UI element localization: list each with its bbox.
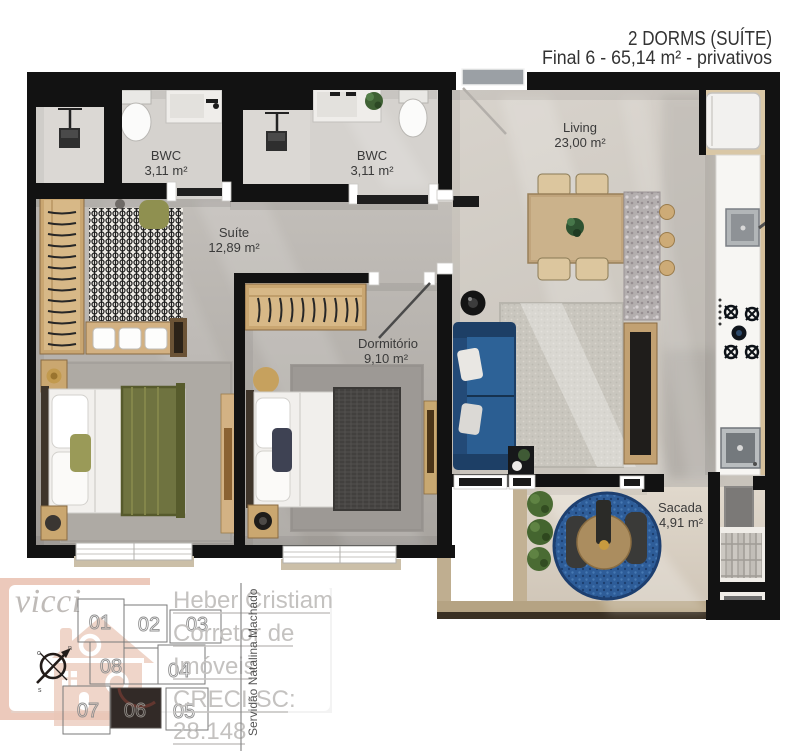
- svg-text:Final 6 - 65,14 m² - privativo: Final 6 - 65,14 m² - privativos: [542, 48, 772, 69]
- svg-text:07: 07: [77, 700, 99, 722]
- svg-text:08: 08: [100, 656, 122, 678]
- svg-text:23,00 m²: 23,00 m²: [554, 135, 606, 150]
- svg-text:Suíte: Suíte: [219, 225, 249, 240]
- svg-text:BWC: BWC: [151, 148, 181, 163]
- svg-text:Sacada: Sacada: [658, 500, 703, 515]
- svg-text:Imóveis: Imóveis: [173, 653, 256, 680]
- svg-text:CRECI-SC:: CRECI-SC:: [173, 686, 296, 713]
- svg-text:n: n: [68, 645, 72, 652]
- svg-text:BWC: BWC: [357, 148, 387, 163]
- svg-text:Corretor de: Corretor de: [173, 620, 294, 647]
- svg-text:28.148: 28.148: [173, 718, 246, 745]
- svg-text:s: s: [38, 687, 42, 694]
- svg-text:Dormitório: Dormitório: [358, 336, 418, 351]
- svg-text:2 DORMS (SUÍTE): 2 DORMS (SUÍTE): [628, 27, 772, 50]
- svg-text:3,11 m²: 3,11 m²: [144, 163, 188, 178]
- svg-text:4,91 m²: 4,91 m²: [659, 515, 704, 530]
- svg-text:Living: Living: [563, 120, 597, 135]
- svg-text:3,11 m²: 3,11 m²: [350, 163, 394, 178]
- svg-text:02: 02: [138, 614, 160, 636]
- svg-text:vicci: vicci: [15, 583, 82, 620]
- svg-text:06: 06: [124, 700, 146, 722]
- svg-text:12,89 m²: 12,89 m²: [208, 240, 260, 255]
- svg-text:o: o: [37, 650, 41, 657]
- svg-text:01: 01: [89, 612, 111, 634]
- svg-text:9,10 m²: 9,10 m²: [364, 351, 409, 366]
- svg-text:Servidão Natalina Machado: Servidão Natalina Machado: [246, 588, 260, 736]
